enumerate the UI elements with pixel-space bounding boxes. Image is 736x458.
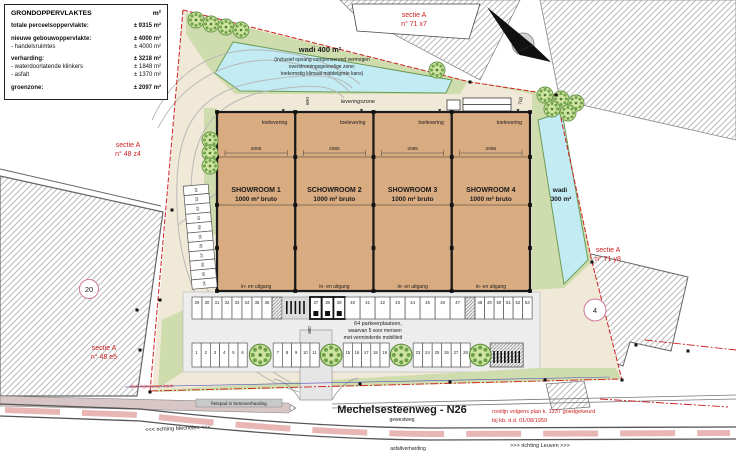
column-marker xyxy=(293,110,297,114)
stall-number: 46 xyxy=(440,300,445,305)
parking-stall xyxy=(210,343,219,367)
svg-text:4: 4 xyxy=(593,306,597,315)
parking-stall xyxy=(292,343,301,367)
road-name: Mechelsesteenweg - N26 xyxy=(337,404,467,416)
rooilijn-note: rooilijn volgens plan k. 1237 goedgekeur… xyxy=(492,409,595,415)
parking-stall xyxy=(432,343,442,367)
column-marker xyxy=(450,246,454,250)
stall-number: 63 xyxy=(195,197,199,202)
bike-rack-icon xyxy=(299,301,301,314)
column-marker xyxy=(215,246,219,250)
tree-icon xyxy=(233,22,249,38)
parking-stall xyxy=(220,343,229,367)
bike-parking xyxy=(465,297,475,319)
column-marker xyxy=(372,203,376,207)
legend-unit: m² xyxy=(153,10,161,17)
boundary-marker xyxy=(635,344,638,347)
section-label-w: n° 48 z4 xyxy=(115,150,141,158)
stall-number: 33 xyxy=(235,300,240,305)
showroom: toelevering2085SHOWROOM 31000 m² brutoin… xyxy=(374,108,452,291)
column-marker xyxy=(528,203,532,207)
stall-number: 28 xyxy=(463,350,468,355)
stall-number: 43 xyxy=(395,300,400,305)
toelevering-label: toelevering xyxy=(418,120,443,126)
stall-number: 51 xyxy=(506,300,511,305)
parking-stall xyxy=(371,343,380,367)
stall-number: 59 xyxy=(198,234,202,239)
parking-stall xyxy=(192,343,201,367)
stall-number: 61 xyxy=(197,216,201,221)
parking-stall xyxy=(461,343,471,367)
tree-icon xyxy=(218,19,234,35)
parking-stall xyxy=(273,343,282,367)
entrance-label: in- en uitgang xyxy=(241,284,272,290)
rooilijn-note: bij kb. d.d. 01/08/1959 xyxy=(492,418,547,424)
legend-row: - waterdoorlatende klinkers± 1848 m² xyxy=(11,64,161,72)
stall-number: 50 xyxy=(497,300,502,305)
parking-stall xyxy=(451,343,461,367)
column-marker xyxy=(528,155,532,159)
entrance-label: in- en uitgang xyxy=(319,284,350,290)
column-marker xyxy=(372,246,376,250)
bike-rack-icon xyxy=(515,351,517,363)
stall-number: 47 xyxy=(455,300,460,305)
stall-number: 23 xyxy=(416,350,421,355)
stall-number: 18 xyxy=(373,350,378,355)
leveringszone-label: leveringszone xyxy=(341,99,375,105)
stall-number: 24 xyxy=(425,350,430,355)
column-marker xyxy=(215,203,219,207)
door-arrow-icon: ▼ xyxy=(516,108,521,114)
bike-rack-icon xyxy=(508,351,510,363)
door-arrow-icon: ▼ xyxy=(437,108,442,114)
column-marker xyxy=(450,110,454,114)
stall-number: 56 xyxy=(201,262,205,267)
stall-number: 55 xyxy=(202,272,206,277)
bike-rack-icon xyxy=(497,351,499,363)
stall-number: 41 xyxy=(365,300,370,305)
legend-row: - asfalt± 1370 m² xyxy=(11,72,161,80)
showroom-name: SCHOWROOM 2 xyxy=(307,187,362,194)
tree-icon xyxy=(188,12,204,28)
parking-stall xyxy=(201,343,210,367)
toelevering-label: toelevering xyxy=(262,120,287,126)
tree-icon xyxy=(429,62,445,78)
tree-icon xyxy=(320,344,342,366)
area-legend: GRONDOPPERVLAKTES m² totale perceelsoppe… xyxy=(4,4,168,100)
stall-number: 29 xyxy=(195,300,200,305)
wadi400-line: toekomstig klimaat middelgrote kans) xyxy=(281,71,364,77)
boundary-marker xyxy=(149,391,152,394)
stall-number: 52 xyxy=(516,300,521,305)
column-marker xyxy=(215,289,219,293)
stall-number: 39 xyxy=(337,300,342,305)
showroom-area: 1000 m² bruto xyxy=(235,196,277,203)
parking-stall xyxy=(282,343,291,367)
stall-number: 16 xyxy=(355,350,360,355)
boundary-marker xyxy=(469,81,472,84)
stall-number: 25 xyxy=(435,350,440,355)
width-dim: 2085 xyxy=(251,146,262,152)
parking-stall xyxy=(301,343,310,367)
showroom-area: 1000 m² bruto xyxy=(313,196,355,203)
section-label-sw: sectie A xyxy=(92,345,117,352)
section-label-sw: n° 48 e5 xyxy=(91,353,117,361)
stall-number: 53 xyxy=(525,300,530,305)
tree-icon xyxy=(390,344,412,366)
width-dim: 2085 xyxy=(329,146,340,152)
stall-number: 27 xyxy=(454,350,459,355)
wadi300-label: 300 m² xyxy=(551,196,572,203)
parcel-number-20: 20 xyxy=(80,280,99,299)
boundary-marker xyxy=(171,209,174,212)
tree-icon xyxy=(537,87,553,103)
bike-parking xyxy=(272,297,282,319)
road-type: gewestweg xyxy=(389,417,414,423)
dim-800b: 800 xyxy=(307,326,312,334)
stall-number: 10 xyxy=(303,350,308,355)
wadi400-line: overstromingsgevoelige zone: xyxy=(289,64,355,70)
parking-note: 64 parkeerplaatsen, xyxy=(354,321,402,327)
bike-rack-icon xyxy=(500,351,502,363)
column-marker xyxy=(450,203,454,207)
parking-stall xyxy=(238,343,247,367)
stall-number: 44 xyxy=(410,300,415,305)
stall-number: 32 xyxy=(225,300,230,305)
column-marker xyxy=(528,110,532,114)
stall-number: 30 xyxy=(205,300,210,305)
column-marker xyxy=(450,289,454,293)
boundary-marker xyxy=(591,261,594,264)
showroom-area: 1000 m² bruto xyxy=(470,196,512,203)
entrance-label: in- en uitgang xyxy=(397,284,428,290)
legend-row: groenzone:± 2097 m² xyxy=(11,85,161,93)
stall-number: 49 xyxy=(487,300,492,305)
column-marker xyxy=(528,289,532,293)
boundary-marker xyxy=(555,94,558,97)
entrance-label: in- en uitgang xyxy=(476,284,507,290)
section-label-w: sectie A xyxy=(116,142,141,149)
direction-mechelen: <<< richting Mechelen <<< xyxy=(145,425,211,434)
stall-number: 62 xyxy=(196,206,200,211)
wadi400-line: (inclusief opvang compenserend vermogen xyxy=(274,57,370,63)
stall-number: 38 xyxy=(325,300,330,305)
toelevering-label: toelevering xyxy=(497,120,522,126)
boundary-marker xyxy=(449,381,452,384)
parking-stall xyxy=(442,343,452,367)
bike-rack-icon xyxy=(493,351,495,363)
stall-number: 17 xyxy=(364,350,369,355)
boundary-marker xyxy=(159,299,162,302)
parking-stall xyxy=(413,343,423,367)
parking-stall xyxy=(352,343,361,367)
parking-note: waarvan 5 voor mensen xyxy=(348,328,402,334)
bike-rack-icon xyxy=(518,351,520,363)
berm-note: deel ingenomen berm xyxy=(130,383,174,389)
stall-number: 35 xyxy=(255,300,260,305)
tree-icon xyxy=(249,344,271,366)
column-marker xyxy=(293,155,297,159)
boundary-marker xyxy=(359,383,362,386)
boundary-marker xyxy=(544,379,547,382)
stall-number: 26 xyxy=(444,350,449,355)
parking-stall xyxy=(343,343,352,367)
showroom: toelevering2085SCHOWROOM 21000 m² brutoi… xyxy=(295,108,373,291)
boundary-marker xyxy=(139,349,142,352)
stall-number: 58 xyxy=(199,244,203,249)
column-marker xyxy=(372,110,376,114)
section-label-ne: n° 71 x7 xyxy=(401,20,427,28)
tree-icon xyxy=(469,344,491,366)
truck-icon xyxy=(447,98,511,111)
wadi400-title: wadi 400 m² xyxy=(298,45,342,54)
door-arrow-icon: ▼ xyxy=(281,108,286,114)
column-marker xyxy=(293,246,297,250)
stall-number: 31 xyxy=(215,300,220,305)
stall-number: 64 xyxy=(194,188,198,193)
column-marker xyxy=(215,110,219,114)
section-label-ne: sectie A xyxy=(402,12,427,19)
stall-number: 37 xyxy=(314,300,319,305)
bike-rack-icon xyxy=(303,301,305,314)
stall-number: 36 xyxy=(265,300,270,305)
stall-number: 48 xyxy=(478,300,483,305)
svg-text:20: 20 xyxy=(85,285,93,294)
tree-icon xyxy=(560,105,576,121)
wadi300-label: wadi xyxy=(552,187,568,194)
stall-number: 19 xyxy=(382,350,387,355)
dim-800: 800 xyxy=(305,97,311,105)
showroom: toelevering2085SHOWROOM 11000 m² brutoin… xyxy=(217,108,295,291)
stall-number: 45 xyxy=(425,300,430,305)
showroom: toelevering2085SHOWROOM 41000 m² brutoin… xyxy=(452,108,530,291)
stall-number: 42 xyxy=(380,300,385,305)
road-surface: asfaltverharding xyxy=(390,446,426,452)
stall-number: 40 xyxy=(350,300,355,305)
parcel-number-4: 4 xyxy=(584,299,606,321)
width-dim: 2085 xyxy=(407,146,418,152)
column-marker xyxy=(293,203,297,207)
legend-row: totale perceelsoppervlakte:± 9315 m² xyxy=(11,23,161,31)
parking-note: met verminderde mobiliteit xyxy=(344,335,403,341)
legend-row: nieuwe gebouwoppervlakte:± 4000 m² xyxy=(11,36,161,44)
bike-rack-icon xyxy=(290,301,292,314)
showroom-name: SHOWROOM 4 xyxy=(466,187,515,194)
legend-title: GRONDOPPERVLAKTES xyxy=(11,10,92,17)
stall-number: 34 xyxy=(245,300,250,305)
column-marker xyxy=(450,155,454,159)
bike-rack-icon xyxy=(504,351,506,363)
stall-number: 60 xyxy=(197,225,201,230)
showroom-name: SHOWROOM 1 xyxy=(231,187,280,194)
tree-icon xyxy=(202,158,218,174)
tree-icon xyxy=(203,16,219,32)
boundary-marker xyxy=(621,379,624,382)
bike-rack-icon xyxy=(295,301,297,314)
toelevering-label: toelevering xyxy=(340,120,365,126)
parking-stall xyxy=(380,343,389,367)
accessible-icon xyxy=(337,311,342,316)
section-label-e: sectie A xyxy=(596,247,621,254)
showroom-name: SHOWROOM 3 xyxy=(388,187,437,194)
width-dim: 2085 xyxy=(486,146,497,152)
bike-rack-icon xyxy=(511,351,513,363)
bike-parking xyxy=(490,343,523,367)
neighbour-block-s xyxy=(546,381,590,410)
accessible-icon xyxy=(313,311,318,316)
legend-row: verharding:± 3218 m² xyxy=(11,56,161,64)
stall-number: 15 xyxy=(345,350,350,355)
cycle-path-label: fietspad in betonverharding xyxy=(211,401,267,406)
column-marker xyxy=(293,289,297,293)
tree-icon xyxy=(544,101,560,117)
stall-number: 54 xyxy=(202,281,206,286)
section-label-e: n° 71 y8 xyxy=(595,255,621,263)
stall-number: 11 xyxy=(312,350,317,355)
parking-stall xyxy=(229,343,238,367)
direction-leuven: >>> richting Leuven >>> xyxy=(510,443,570,449)
stall-number: 57 xyxy=(200,253,204,258)
legend-row: - handelsruimtes± 4000 m² xyxy=(11,44,161,52)
column-marker xyxy=(528,246,532,250)
bike-rack-icon xyxy=(286,301,288,314)
boundary-marker xyxy=(136,309,139,312)
showroom-area: 1000 m² bruto xyxy=(392,196,434,203)
boundary-marker xyxy=(687,350,690,353)
column-marker xyxy=(372,289,376,293)
column-marker xyxy=(372,155,376,159)
accessible-icon xyxy=(325,311,330,316)
parking-stall xyxy=(310,343,319,367)
parking-stall xyxy=(423,343,433,367)
parking-stall xyxy=(362,343,371,367)
door-arrow-icon: ▼ xyxy=(359,108,364,114)
